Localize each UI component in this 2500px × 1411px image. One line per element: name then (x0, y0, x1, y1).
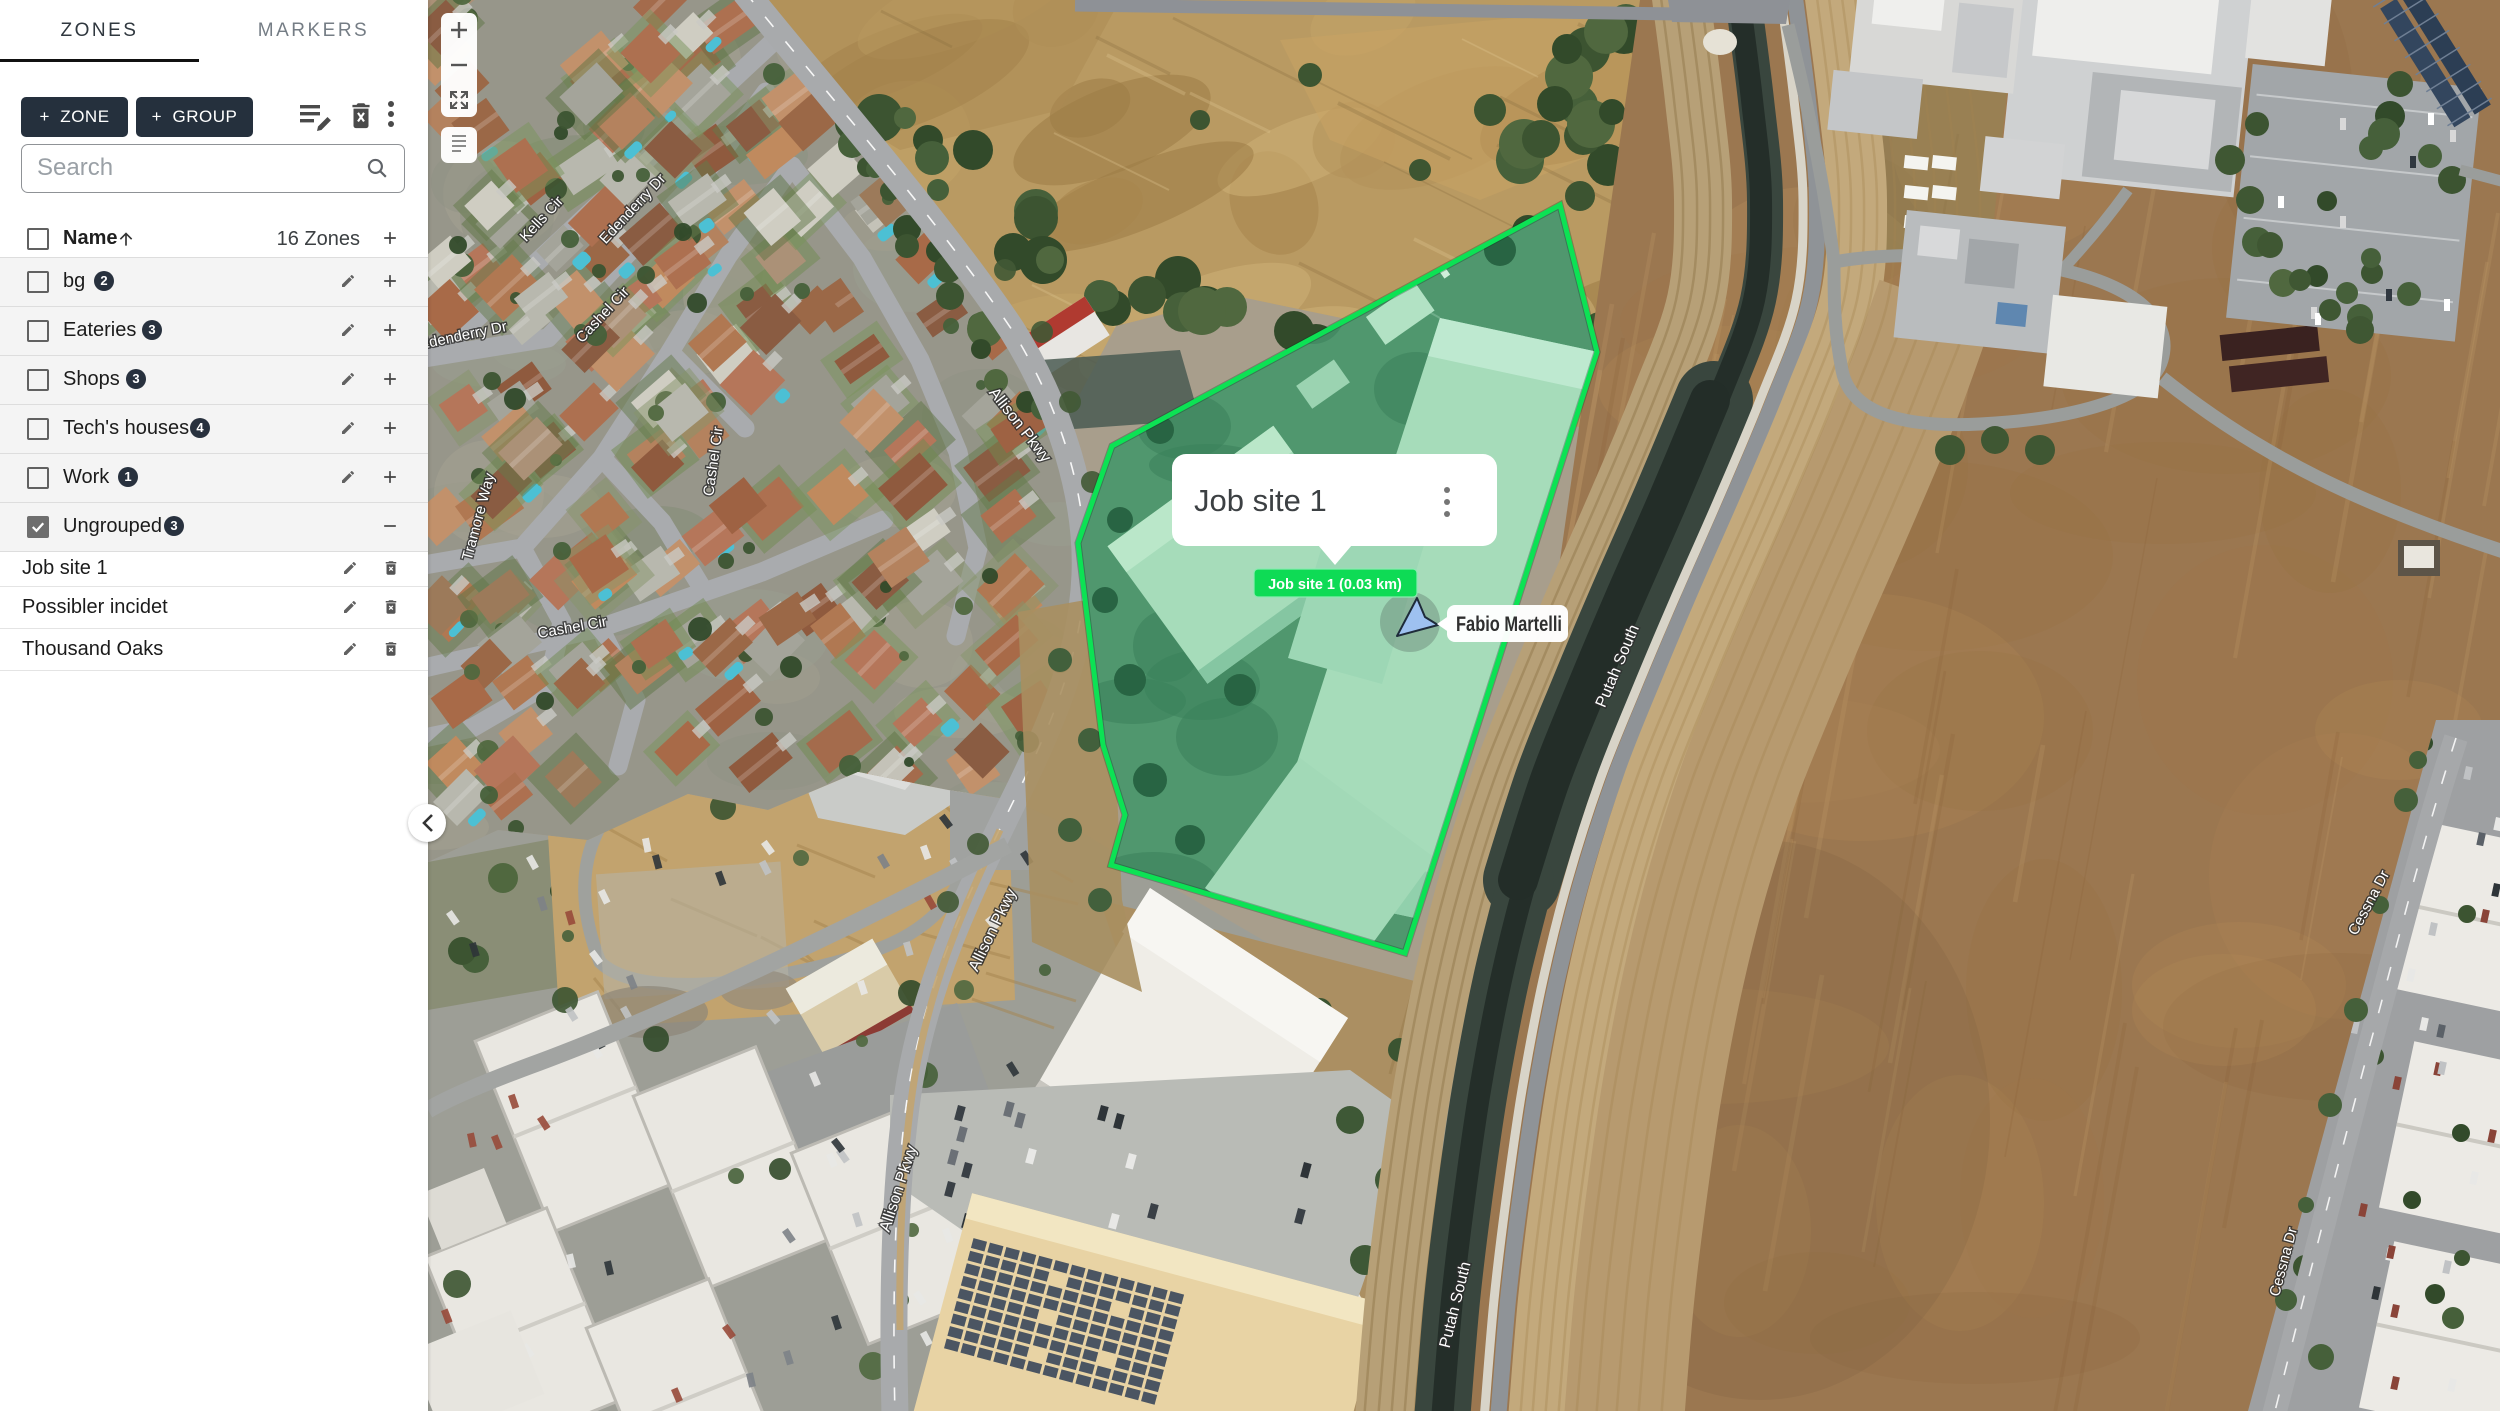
svg-text:Fabio Martelli: Fabio Martelli (1456, 613, 1562, 636)
svg-text:Job site 1: Job site 1 (1194, 483, 1327, 518)
svg-text:Job site 1 (0.03 km): Job site 1 (0.03 km) (1268, 577, 1402, 593)
